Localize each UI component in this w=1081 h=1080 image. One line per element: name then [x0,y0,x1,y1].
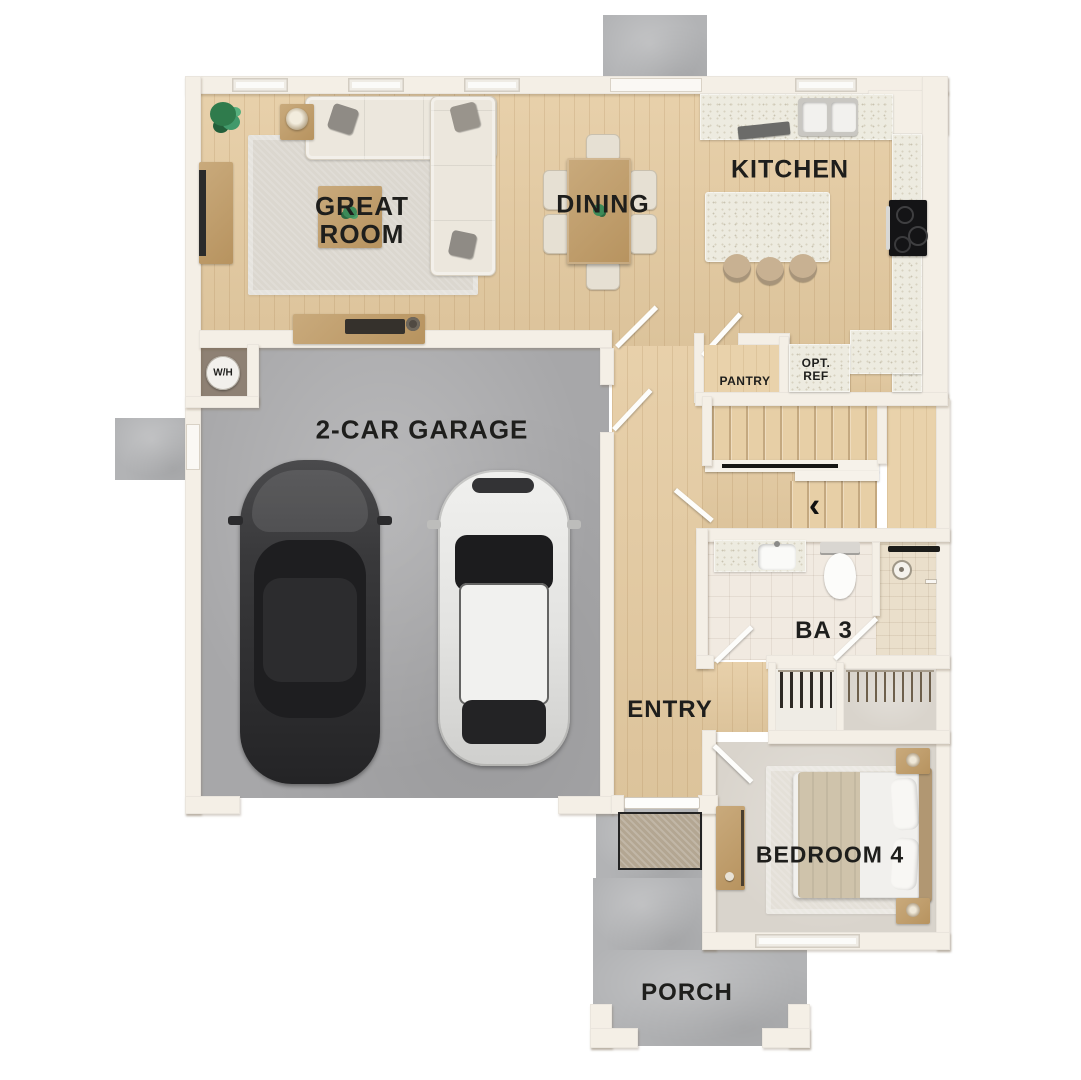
room-label-bedroom4: BEDROOM 4 [756,842,904,869]
great-room-window-2 [348,78,404,92]
room-label-pantry: PANTRY [720,374,771,388]
towel-bar [888,546,940,552]
shower-drain-dot [899,567,904,572]
room-label-entry: ENTRY [627,696,712,724]
stair-treads-upper [712,398,877,462]
stair-landing [887,398,936,534]
light-car-sunroof [472,478,534,493]
bath3-bottom-wall-right [766,655,950,669]
soundbar [345,319,405,334]
kitchen-island [705,192,830,262]
back-door [610,78,702,92]
porch-pillar-right-h [762,1028,810,1048]
bath3-sink [758,544,796,570]
bedroom4-dresser-edge [741,810,744,886]
exterior-right-wall-lower [936,398,950,950]
dark-car-mirror-left [228,516,243,525]
record-player [406,317,420,331]
shower-control [926,580,936,583]
nightstand-top-lamp [906,753,920,767]
garage-bottom-wall-left [185,796,240,814]
kitchen-sink-basin-left [802,102,827,132]
cooktop-burner-2 [908,226,928,246]
room-label-kitchen: KITCHEN [731,156,849,185]
floorplan-canvas: ‹ [0,0,1081,1080]
island-stool-1 [723,254,751,282]
sofa-pillow-3 [448,230,478,260]
room-label-bath3: BA 3 [795,617,853,645]
kitchen-sink-basin-right [831,102,856,132]
pantry-optref-divider [779,336,789,396]
closet-b-rod [846,670,934,672]
shower-divider-wall [872,542,880,616]
light-car-rear-glass [462,700,546,744]
garage-hall-wall-upper [600,348,614,385]
closet-divider-left [768,662,776,732]
shower-tile-floor [876,540,936,662]
stairs-left-wall [702,396,712,466]
bed-blanket [798,772,860,898]
wh-closet-right-wall [247,344,259,404]
island-stool-2 [756,257,784,285]
bath3-sink-faucet [774,541,780,547]
bed-headboard [919,768,932,902]
bedroom4-top-wall-right [768,730,950,744]
wh-closet-bottom-wall [185,396,259,408]
kitchen-bottom-counter [850,330,922,374]
tv-screen [199,170,206,256]
dark-car-mirror-right [377,516,392,525]
light-car-roof-panel [459,583,549,705]
oven-handle [886,206,890,250]
bed-pillow-1 [890,777,920,831]
room-label-great-room: GREAT ROOM [307,192,417,248]
closet-a-rod [778,670,834,672]
kitchen-top-counter [700,94,893,140]
kitchen-window [795,78,857,92]
porch-pillar-left-h [590,1028,638,1048]
front-door [624,797,700,809]
closet-divider-right [836,662,844,732]
kitchen-stairs-wall [695,392,948,406]
room-label-garage: 2-CAR GARAGE [316,415,529,446]
nightstand-bottom-lamp [906,903,920,917]
dining-chair-right-2 [629,214,657,254]
table-lamp [286,108,308,130]
stair-railing-lower [795,471,879,481]
island-stool-3 [789,254,817,282]
cooktop-burner-3 [894,236,911,253]
room-label-dining: DINING [556,191,650,220]
room-label-porch: PORCH [641,979,733,1007]
stair-direction-arrow: ‹ [809,487,821,526]
bath3-bottom-wall-left [696,655,714,669]
garage-hall-wall-lower [600,432,614,805]
garage-bottom-wall-right [558,796,613,814]
porch-floor-upper [593,878,703,956]
bedroom4-left-wall [702,730,716,950]
dark-car-hood-highlight [252,470,368,532]
light-car-mirror-right [567,520,581,529]
toilet-bowl [824,553,856,599]
stair-handrail [722,464,838,468]
cooktop-burner-1 [896,206,914,224]
bath3-left-wall [696,528,708,668]
front-doormat [618,812,702,870]
great-room-window-3 [464,78,520,92]
dark-car-roof-panel [263,578,357,682]
dining-chair-bottom [586,260,620,290]
garage-side-door [186,424,200,470]
closet-b-hanging-clothes [848,672,932,702]
bedroom4-dresser-knob [725,872,734,881]
great-room-window-1 [232,78,288,92]
bedroom4-window [755,934,860,948]
stair-side-wall [877,398,887,464]
room-label-water-heater: W/H [213,368,232,379]
corner-plant [210,102,236,126]
light-car-mirror-left [427,520,441,529]
room-label-opt-ref: OPT. REF [796,357,836,383]
closet-a-hanging-clothes [780,672,832,708]
